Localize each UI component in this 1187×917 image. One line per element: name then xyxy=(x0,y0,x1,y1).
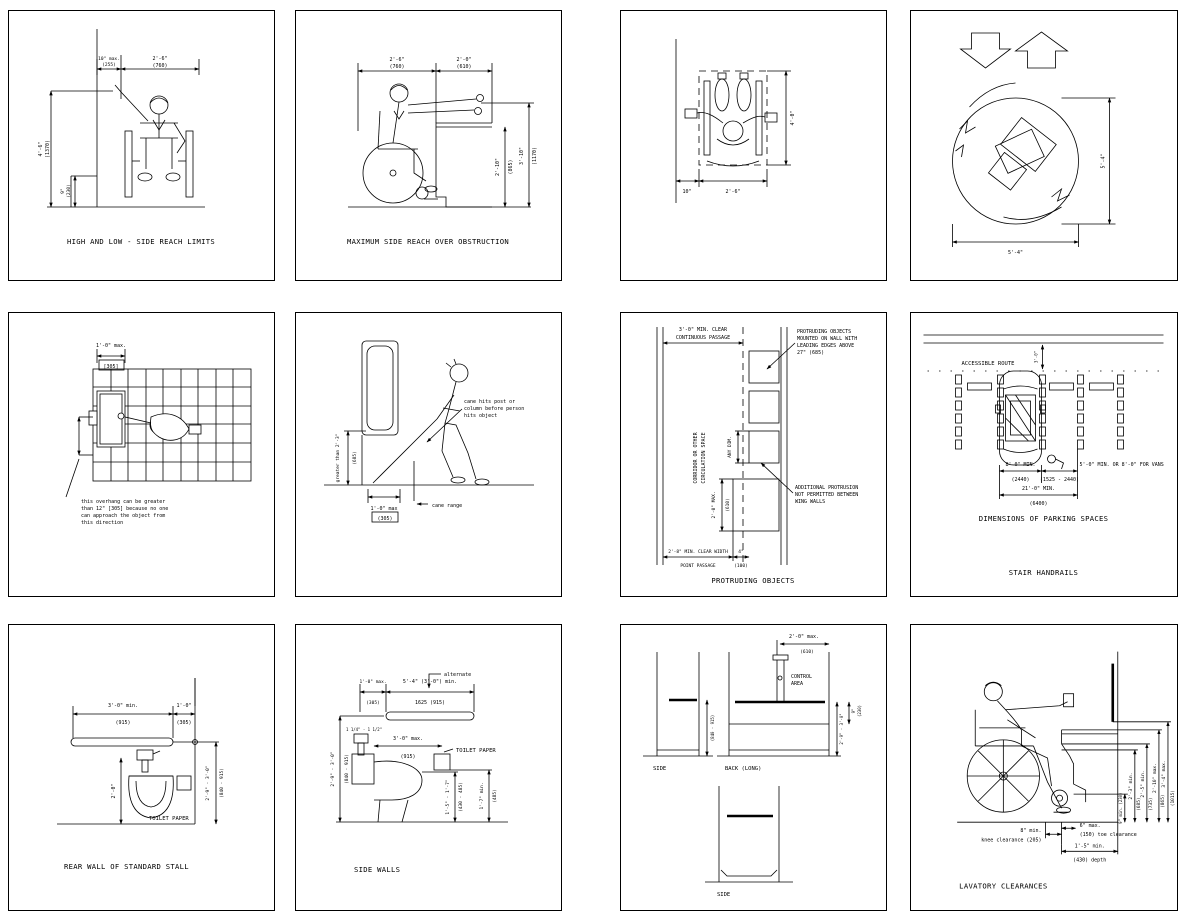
dim-gap: 4" xyxy=(738,549,743,555)
panel-caption: PROTRUDING OBJECTS xyxy=(711,576,794,585)
dim-mirror: 3'-4" max. xyxy=(1161,760,1167,787)
dim-offset: 10" xyxy=(682,189,691,195)
control-area-label-1: CONTROL xyxy=(791,674,812,680)
clear-space-boundary xyxy=(699,71,767,165)
panel-caption: SIDE WALLS xyxy=(354,865,400,874)
wall-and-floor xyxy=(57,678,195,824)
dim-wall-offset: 10" max. xyxy=(98,56,120,62)
dim-obstruction-mm: (610) xyxy=(456,64,471,70)
parking-stripes xyxy=(956,375,1124,449)
roadway-lines xyxy=(924,335,1164,371)
dim-bar-mm: (915) xyxy=(115,720,130,726)
caption-side-1: SIDE xyxy=(653,766,666,772)
panel-side-reach-obstruction: 2'-6" (760) 2'-0" (610) 2'-10" (865) 3'-… xyxy=(295,10,562,281)
note1-line: 27" (685) xyxy=(797,350,824,356)
dim-height-mm: (840 - 915) xyxy=(219,768,225,798)
dim-bar-height: 2'-9" - 3'-0" xyxy=(839,713,844,744)
parking-spaces-drawing: ACCESSIBLE ROUTE 3'-0" 8'-0" MIN. (2440)… xyxy=(911,313,1177,596)
panel-side-walls: 1'-0" max. (305) 5'-4" (3'-0") min. 1625… xyxy=(295,624,562,911)
wall-and-floor xyxy=(47,29,205,207)
dim-counter-mm: (865) xyxy=(508,159,514,174)
dim-wall: 1'-0" xyxy=(176,703,191,709)
dim-control-mm: (610) xyxy=(800,649,814,655)
dim-toe-height: 9" min. (230) xyxy=(1118,792,1123,823)
panel-caption: LAVATORY CLEARANCES xyxy=(959,881,1047,890)
control-area-label-2: AREA xyxy=(791,681,803,687)
panel-caption: MAXIMUM SIDE REACH OVER OBSTRUCTION xyxy=(347,237,509,246)
dim-diameter-v: 5'-4" xyxy=(1101,153,1107,168)
dim-height-mm: (840 - 915) xyxy=(344,754,350,784)
dim-height: greater than 2'-3" xyxy=(335,434,341,483)
dim-overhang-max-mm: [305] xyxy=(103,364,118,370)
panel-caption: DIMENSIONS OF PARKING SPACES xyxy=(979,514,1109,523)
dim-any: ANY DIM. xyxy=(727,436,733,458)
dim-clear: 2'-6" xyxy=(389,57,404,63)
panel-overhang-reach: 1'-0" max. [305] this overhang can be gr… xyxy=(8,312,275,597)
dim-height-mm: (685) xyxy=(352,451,358,465)
dim-rim: 2'-10" max. xyxy=(1152,763,1158,793)
cane-range-drawing: greater than 2'-3" (685) 1'-0" max (305)… xyxy=(296,313,561,596)
note-line: than 12" [305] because no one xyxy=(81,506,168,512)
dim-wall-offset-mm: (255) xyxy=(102,62,116,68)
panel-parking-spaces: ACCESSIBLE ROUTE 3'-0" 8'-0" MIN. (2440)… xyxy=(910,312,1178,597)
dim-rear: 1'-0" max. xyxy=(359,679,386,685)
side-view-1 xyxy=(643,652,713,756)
note2-line: WING WALLS xyxy=(795,499,825,505)
panel-turning-space: 5'-4" 5'-4" xyxy=(910,10,1178,281)
grab-bar xyxy=(71,738,173,746)
corridor-label-1: CORRIDOR OR OTHER xyxy=(693,431,699,483)
dim-protrusion: 2'-0" MAX. xyxy=(711,491,717,518)
panel-lavatory-clearances: 9" min. (230) 2'-3" min. (685) 2'-5" min… xyxy=(910,624,1178,911)
dimension-lines xyxy=(73,678,219,824)
dim-mirror-mm: (1015) xyxy=(1170,790,1176,806)
dim-total-mm: (6400) xyxy=(1029,501,1047,507)
dim-route: 3'-0" xyxy=(1034,351,1039,363)
dimension-lines xyxy=(358,63,534,207)
dim-control: 2'-0" max. xyxy=(789,634,819,640)
grab-bar xyxy=(386,712,474,720)
cane-range-label: cane range xyxy=(432,503,462,509)
dim-point-passage-2: POINT PASSAGE xyxy=(680,563,716,569)
toilet-front-figure xyxy=(129,750,191,818)
side-walls-drawing: 1'-0" max. (305) 5'-4" (3'-0") min. 1625… xyxy=(296,625,561,910)
dim-width: 2'-6" xyxy=(725,189,740,195)
counter-and-floor xyxy=(348,123,531,207)
dim-aisle-mm: (1525 - 2440) xyxy=(1040,477,1079,483)
note-line: hits object xyxy=(464,413,497,419)
panel-rear-wall-stall: 3'-0" min. (915) 1'-0" (305) 2'-0" 2'-9"… xyxy=(8,624,275,911)
note1-line: MOUNTED ON WALL WITH xyxy=(797,336,857,342)
clear-floor-space-drawing: 4'-0" 10" 2'-6" xyxy=(621,11,886,280)
dim-depth-mm: (305) xyxy=(377,516,392,522)
dim-knee-height-mm: (685) xyxy=(1136,797,1142,811)
walking-person-cane-figure xyxy=(373,359,489,485)
dim-rim-mm: (230) xyxy=(857,705,862,717)
dim-tp-height: 1'-7" min. xyxy=(479,782,485,809)
toilet-paper-label: TOILET PAPER xyxy=(149,816,189,822)
dim-apron-mm: (735) xyxy=(1148,797,1154,811)
dim-high: 4'-6" xyxy=(38,141,44,156)
wheelchair-symbol-figure xyxy=(1048,455,1064,469)
dim-gap-mm: (100) xyxy=(734,563,748,569)
dim-length: 4'-0" xyxy=(790,110,796,125)
dim-rim: 9" xyxy=(851,709,856,714)
cad-sheet: 10" max. (255) 2'-6" (760) 4'-6" (1370) … xyxy=(0,0,1187,917)
note-line: this overhang can be greater xyxy=(81,499,165,505)
dim-passage: 3'-0" MIN. CLEAR xyxy=(679,327,728,333)
note-line: this direction xyxy=(81,520,123,526)
dimension-lines xyxy=(676,71,791,187)
dim-toe-depth-2: (150) toe clearance xyxy=(1080,832,1137,838)
panel-caption-2: STAIR HANDRAILS xyxy=(1009,568,1078,577)
dim-aisle: 5'-0" MIN. OR 8'-0" FOR VANS xyxy=(1080,462,1164,468)
dim-obstruction: 2'-0" xyxy=(456,57,471,63)
reaching-person-plan-figure xyxy=(118,413,201,440)
dim-knee-height: 2'-3" min. xyxy=(1128,773,1134,800)
dim-space: 8'-0" MIN. xyxy=(1005,462,1035,468)
panel-tub-controls: (840 - 915) CONTROL AREA 2'-0" max. (610… xyxy=(620,624,887,911)
dim-tp-height-mm: (485) xyxy=(492,789,498,803)
dim-depth: 1'-0" max xyxy=(370,506,397,512)
dim-high-mm: (1370) xyxy=(45,140,51,158)
dim-overhang-max: 1'-0" max. xyxy=(96,343,126,349)
dim-knee-depth: 8" min. xyxy=(1020,828,1041,834)
panel-cane-range: greater than 2'-3" (685) 1'-0" max (305)… xyxy=(295,312,562,597)
dim-counter: 2'-10" xyxy=(495,158,501,176)
dim-clear-mm: (760) xyxy=(389,64,404,70)
alternate-label: alternate xyxy=(444,672,471,678)
protruding-cabinets xyxy=(733,351,779,531)
car-plan-figure xyxy=(996,371,1046,465)
dim-tp: 3'-0" max. xyxy=(393,736,423,742)
panel-caption: REAR WALL OF STANDARD STALL xyxy=(64,862,189,871)
dim-reach-mm: (1170) xyxy=(532,147,538,165)
dim-valve: 2'-0" xyxy=(111,783,117,798)
dim-low: 9" xyxy=(60,188,66,193)
note2-line: ADDITIONAL PROTRUSION xyxy=(795,485,858,491)
toilet-paper-label: TOILET PAPER xyxy=(456,748,496,754)
caption-side-2: SIDE xyxy=(717,892,730,898)
dim-total: 21'-0" MIN. xyxy=(1022,486,1055,492)
lavatory-clearances-drawing: 9" min. (230) 2'-3" min. (685) 2'-5" min… xyxy=(911,625,1177,910)
dim-bar: 5'-4" (3'-0") min. xyxy=(403,679,457,685)
caption-back: BACK (LONG) xyxy=(725,766,761,772)
dim-apron: 2'-5" min. xyxy=(1140,771,1146,798)
dim-depth: 1'-5" min. xyxy=(1075,843,1105,849)
side-reach-obstruction-drawing: 2'-6" (760) 2'-0" (610) 2'-10" (865) 3'-… xyxy=(296,11,561,280)
panel-protruding-objects: 3'-0" MIN. CLEAR CONTINUOUS PASSAGE CORR… xyxy=(620,312,887,597)
up-arrow-icon xyxy=(1016,32,1068,68)
side-view-2 xyxy=(705,786,793,882)
dim-space-mm: (2440) xyxy=(1011,477,1029,483)
turning-wheelchairs-figure xyxy=(953,83,1079,224)
person-figure xyxy=(984,682,1073,813)
dim-depth-2: (430) depth xyxy=(1073,857,1106,863)
note-line: can approach the object from xyxy=(81,513,165,519)
overhang-reach-drawing: 1'-0" max. [305] this overhang can be gr… xyxy=(9,313,274,596)
note1-line: PROTRUDING OBJECTS xyxy=(797,329,851,335)
tub-controls-drawing: (840 - 915) CONTROL AREA 2'-0" max. (610… xyxy=(621,625,886,910)
dim-toe-depth: 6" max. xyxy=(1080,823,1101,829)
protruding-objects-drawing: 3'-0" MIN. CLEAR CONTINUOUS PASSAGE CORR… xyxy=(621,313,886,596)
panel-clear-floor-space: 4'-0" 10" 2'-6" xyxy=(620,10,887,281)
dim-seat: 1'-5" - 1'-7" xyxy=(445,779,451,814)
note1-line: LEADING EDGES ABOVE xyxy=(797,343,854,349)
dim-protrusion-mm: (610) xyxy=(725,498,731,512)
dim-bar: 3'-0" min. xyxy=(108,703,138,709)
dim-bar-mm: 1625 (915) xyxy=(415,700,445,706)
down-arrow-icon xyxy=(961,33,1011,68)
dim-bar-diameter: 1 1/4" - 1 1/2" xyxy=(346,727,382,732)
dim-wall-mm: (305) xyxy=(176,720,191,726)
dim-height: 2'-9" - 3'-0" xyxy=(205,765,211,800)
wall-mirror-lavatory xyxy=(957,652,1118,823)
dim-width-mm: (760) xyxy=(152,63,167,69)
dim-knee-depth-2: knee clearance (205) xyxy=(981,837,1041,843)
dimension-lines xyxy=(1000,345,1078,499)
note2-line: NOT PERMITTED BETWEEN xyxy=(795,492,858,498)
dim-rim-mm: (865) xyxy=(1160,794,1166,808)
dim-point-passage: 2'-8" MIN. CLEAR WIDTH xyxy=(668,549,728,555)
wheelchair-user-front-figure xyxy=(115,85,193,197)
dim-height: 2'-9" - 3'-0" xyxy=(330,751,336,786)
rear-wall-stall-drawing: 3'-0" min. (915) 1'-0" (305) 2'-0" 2'-9"… xyxy=(9,625,274,910)
dim-low-mm: (230) xyxy=(66,184,72,198)
dim-seat-mm: (430 - 485) xyxy=(458,782,464,812)
back-view xyxy=(717,640,849,756)
panel-high-low-side-reach: 10" max. (255) 2'-6" (760) 4'-6" (1370) … xyxy=(8,10,275,281)
dim-width: 2'-6" xyxy=(152,56,167,62)
dim-tp-mm: (915) xyxy=(400,754,415,760)
dim-bar-height-mm: (840 - 915) xyxy=(710,715,715,742)
high-low-side-reach-drawing: 10" max. (255) 2'-6" (760) 4'-6" (1370) … xyxy=(9,11,274,280)
note-line: column before person xyxy=(464,406,524,412)
wheelchair-user-side-figure xyxy=(363,84,484,203)
note-line: cane hits post or xyxy=(464,399,515,405)
dim-rear-mm: (305) xyxy=(366,700,380,706)
accessible-route-label: ACCESSIBLE ROUTE xyxy=(962,361,1015,367)
corridor-label-2: CIRCULATION SPACE xyxy=(701,432,707,483)
dim-passage-2: CONTINUOUS PASSAGE xyxy=(676,335,730,341)
panel-caption: HIGH AND LOW - SIDE REACH LIMITS xyxy=(67,237,215,246)
dim-reach: 3'-10" xyxy=(519,147,525,165)
dim-diameter-h: 5'-4" xyxy=(1008,250,1023,256)
turning-space-drawing: 5'-4" 5'-4" xyxy=(911,11,1177,280)
dimension-lines xyxy=(953,98,1116,247)
